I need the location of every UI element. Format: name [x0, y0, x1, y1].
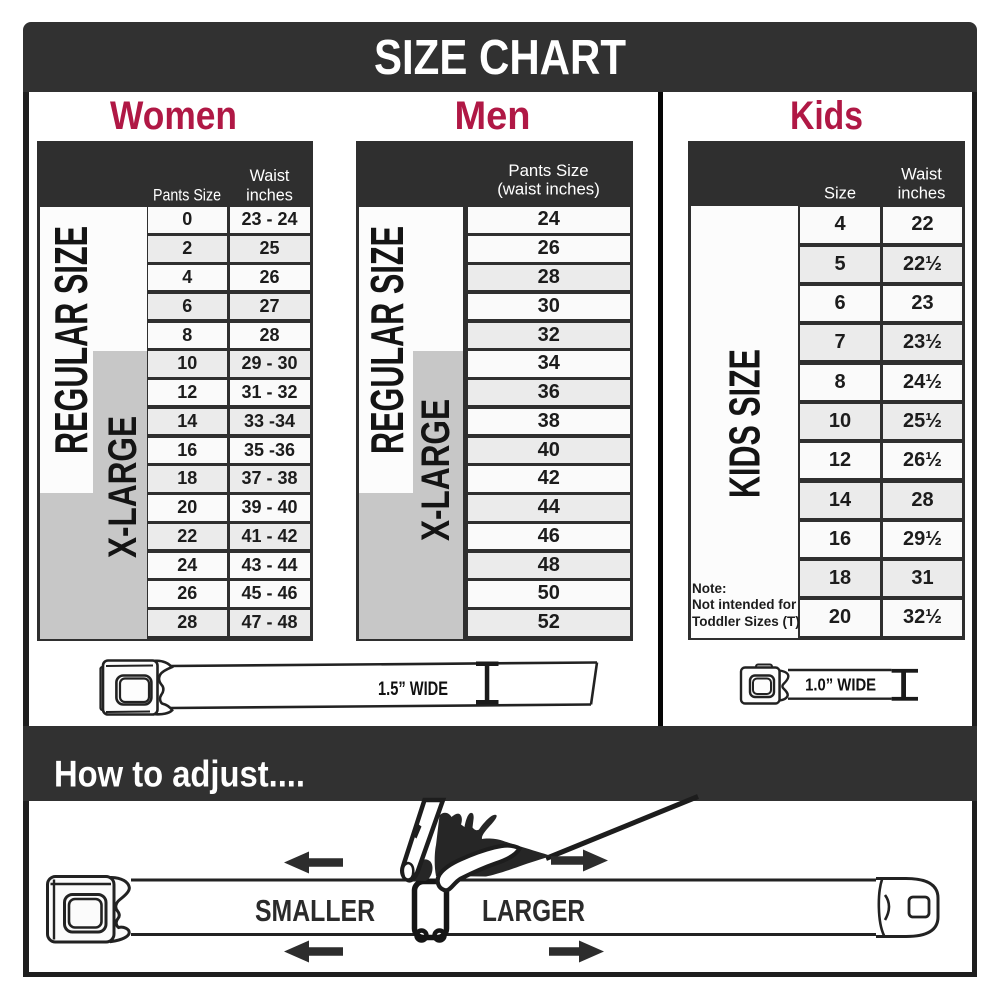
svg-text:SMALLER: SMALLER — [255, 893, 375, 928]
svg-text:X-LARGE: X-LARGE — [101, 416, 145, 558]
svg-text:KIDS SIZE: KIDS SIZE — [721, 349, 770, 498]
svg-text:Men: Men — [455, 94, 531, 138]
svg-text:Pants Size: Pants Size — [508, 161, 588, 180]
svg-text:LARGER: LARGER — [482, 893, 585, 928]
svg-text:X-LARGE: X-LARGE — [414, 399, 458, 541]
svg-text:REGULAR SIZE: REGULAR SIZE — [361, 226, 413, 454]
svg-text:1.0” WIDE: 1.0” WIDE — [805, 675, 876, 695]
svg-text:Waist: Waist — [250, 167, 290, 185]
svg-text:Waist: Waist — [901, 166, 942, 184]
svg-text:Women: Women — [110, 94, 237, 138]
svg-text:REGULAR SIZE: REGULAR SIZE — [45, 226, 97, 454]
svg-text:How to adjust....: How to adjust.... — [54, 754, 305, 795]
svg-text:SIZE CHART: SIZE CHART — [374, 31, 626, 85]
svg-text:Pants Size: Pants Size — [153, 187, 221, 205]
svg-text:Size: Size — [824, 185, 856, 203]
svg-text:(waist inches): (waist inches) — [497, 180, 600, 199]
svg-text:Kids: Kids — [790, 94, 863, 138]
svg-text:1.5” WIDE: 1.5” WIDE — [378, 679, 448, 700]
svg-text:inches: inches — [246, 187, 293, 205]
svg-text:inches: inches — [898, 185, 946, 203]
